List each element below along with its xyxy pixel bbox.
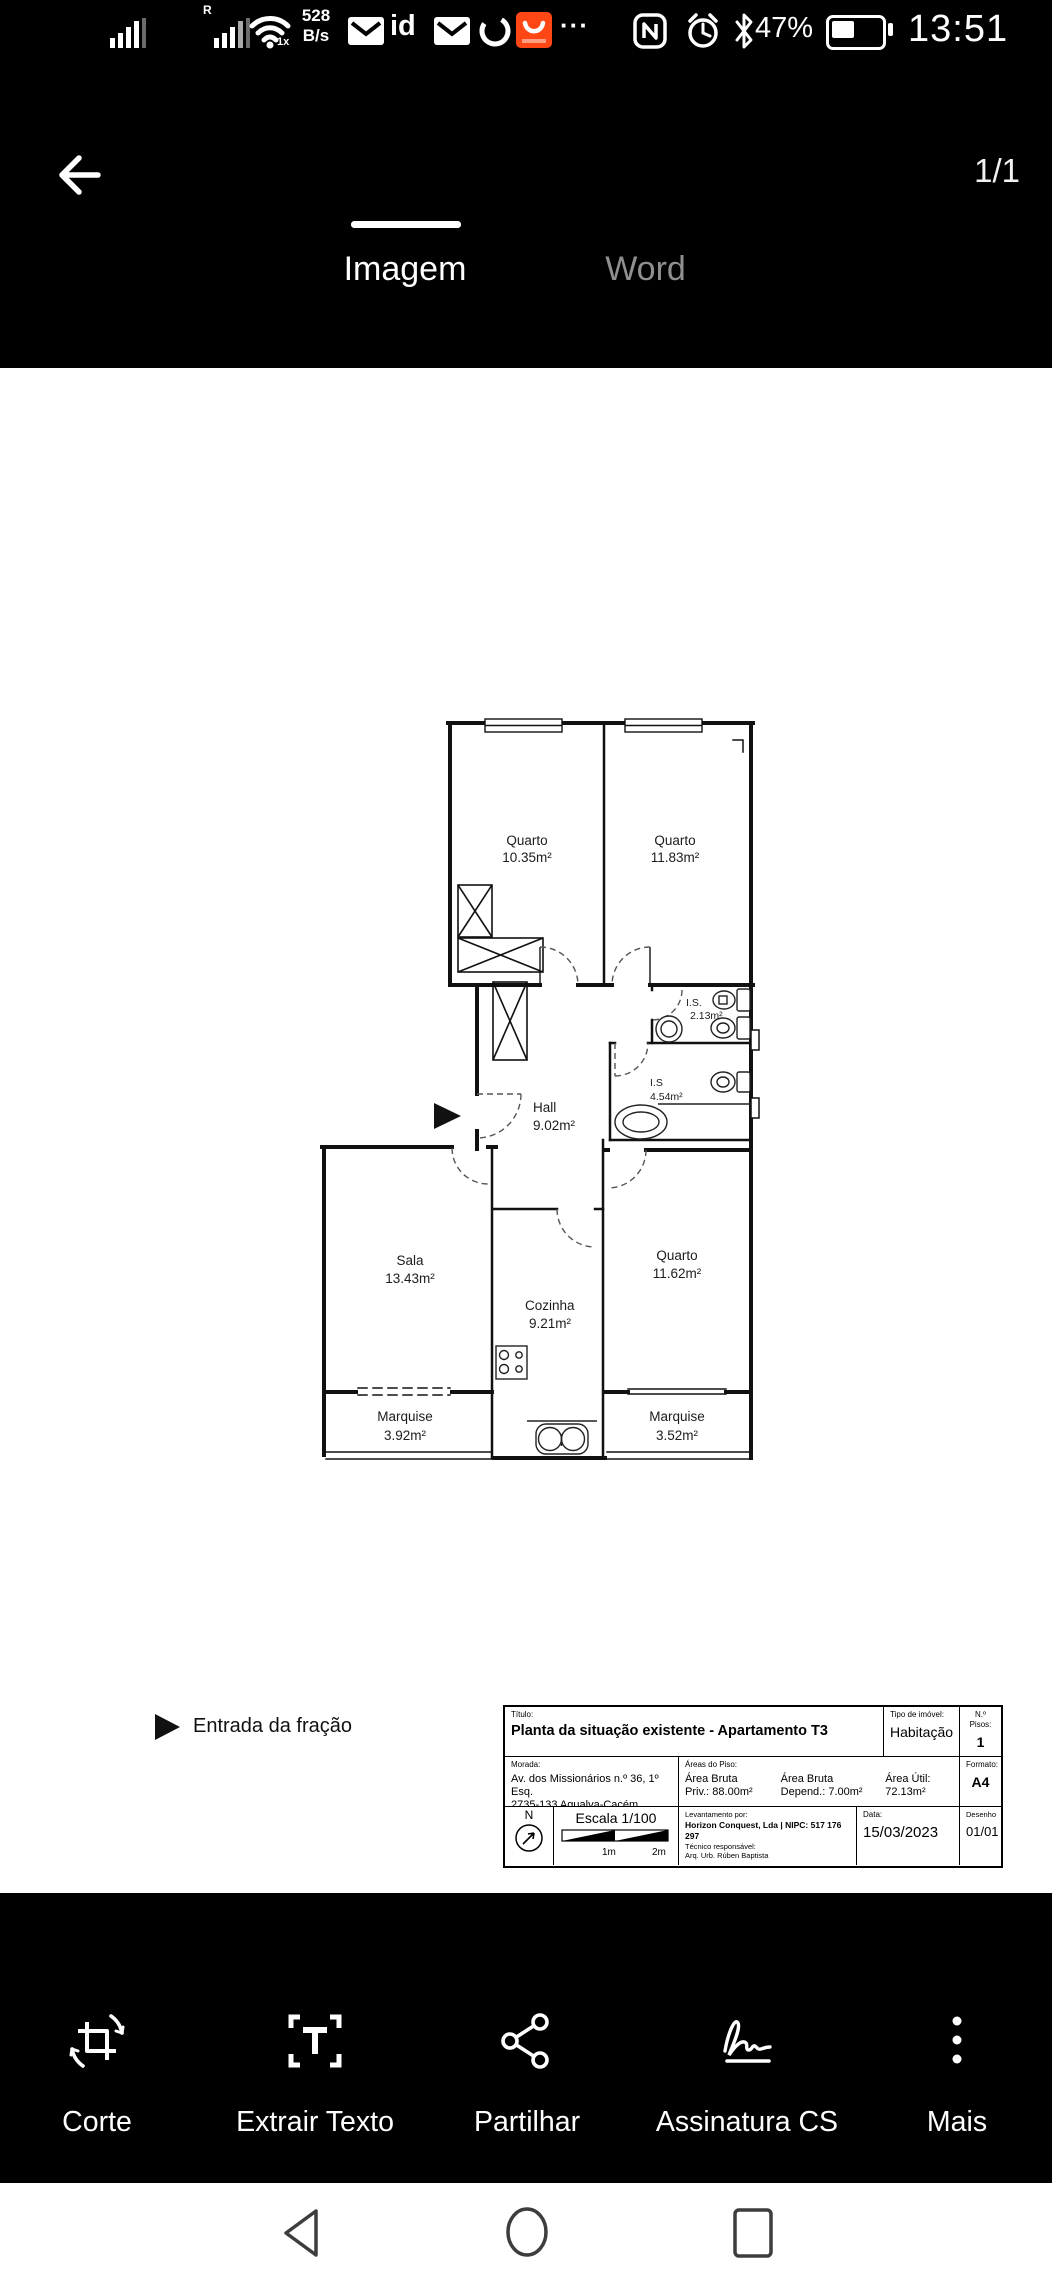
crop-label: Corte	[17, 2106, 177, 2139]
data-value: 15/03/2023	[863, 1824, 953, 1841]
data-cell: Data: 15/03/2023	[856, 1807, 959, 1865]
room-area: 11.62m²	[653, 1266, 702, 1281]
room-area: 3.92m²	[384, 1428, 427, 1443]
id-app-icon: id	[390, 10, 416, 43]
battery-nub	[888, 23, 893, 36]
levantamento-label: Levantamento por:	[685, 1810, 850, 1820]
share-label: Partilhar	[427, 2106, 627, 2139]
room-area: 13.43m²	[385, 1271, 435, 1286]
clock: 13:51	[908, 8, 1008, 51]
room-area: 11.83m²	[651, 850, 700, 865]
crop-button[interactable]: Corte	[17, 2009, 177, 2139]
active-tab-underline	[351, 221, 461, 228]
north-label: N	[506, 1808, 552, 1822]
desenho-label: Desenho	[966, 1810, 995, 1819]
formato-label: Formato:	[966, 1760, 995, 1770]
title-cell: Título: Planta da situação existente - A…	[505, 1707, 883, 1756]
room-label: I.S	[650, 1077, 663, 1089]
morada-label: Morada:	[511, 1760, 672, 1770]
mail-icon-2	[434, 17, 470, 45]
desenho-value: 01/01	[966, 1824, 995, 1839]
crop-rotate-icon	[65, 2009, 129, 2073]
tecnico-label: Técnico responsável:	[685, 1842, 850, 1852]
room-area: 9.21m²	[529, 1316, 572, 1331]
escala-label: Escala 1/100	[560, 1810, 672, 1826]
bottom-toolbar: Corte Extrair Texto Partilhar Assinatura…	[0, 1893, 1052, 2183]
room-label: Cozinha	[525, 1298, 575, 1313]
morada-line1: Av. dos Missionários n.º 36, 1º Esq.	[511, 1773, 672, 1799]
floor-plan-image: Quarto 10.35m² Quarto 11.83m² I.S. 2.13m…	[300, 700, 770, 1490]
plan-entry-arrow-icon	[434, 1103, 461, 1129]
pisos-cell: N.º Pisos: 1	[959, 1707, 1001, 1756]
tipo-value: Habitação	[890, 1724, 953, 1740]
aliexpress-icon	[516, 12, 552, 48]
network-speed-unit: B/s	[287, 26, 345, 46]
plan-room-labels: Quarto 10.35m² Quarto 11.83m² I.S. 2.13m…	[377, 833, 723, 1443]
android-navbar	[0, 2183, 1052, 2276]
battery-percent: 47%	[755, 12, 813, 45]
extract-text-icon	[283, 2009, 347, 2073]
desenho-cell: Desenho 01/01	[959, 1807, 1001, 1865]
tab-imagem[interactable]: Imagem	[300, 250, 510, 289]
status-bar: R 1x 528 B/s id ···	[0, 0, 1052, 62]
titulo-value: Planta da situação existente - Apartamen…	[511, 1723, 877, 1740]
more-notifications-icon: ···	[560, 10, 589, 41]
scale-tick-1m: 1m	[602, 1847, 616, 1858]
area-bruta-dep-l2: Depend.: 7.00m²	[781, 1786, 886, 1799]
nav-home-button[interactable]	[504, 2206, 550, 2258]
areas-cell: Áreas do Piso: Área Bruta Priv.: 88.00m²…	[678, 1757, 959, 1806]
tipo-cell: Tipo de imóvel: Habitação	[883, 1707, 959, 1756]
sync-ring-icon	[478, 14, 512, 48]
plan-windows	[485, 717, 702, 735]
extract-text-button[interactable]: Extrair Texto	[195, 2009, 435, 2139]
room-label: Marquise	[377, 1409, 433, 1424]
share-button[interactable]: Partilhar	[427, 2009, 627, 2139]
room-area: 10.35m²	[502, 850, 552, 865]
legend-entry-label: Entrada da fração	[193, 1715, 352, 1738]
tecnico-value: Arq. Urb. Rúben Baptista	[685, 1851, 850, 1861]
more-vertical-icon	[925, 2009, 989, 2073]
data-label: Data:	[863, 1810, 953, 1820]
document-page[interactable]: Quarto 10.35m² Quarto 11.83m² I.S. 2.13m…	[0, 368, 1052, 1893]
nav-recents-button[interactable]	[732, 2208, 774, 2258]
room-label: Quarto	[654, 833, 695, 848]
formato-value: A4	[966, 1774, 995, 1790]
room-area: 2.13m²	[690, 1010, 723, 1022]
formato-cell: Formato: A4	[959, 1757, 1001, 1806]
tipo-label: Tipo de imóvel:	[890, 1710, 953, 1720]
more-label: Mais	[877, 2106, 1037, 2139]
room-area: 9.02m²	[533, 1118, 576, 1133]
north-cell: N	[505, 1807, 553, 1865]
morada-cell: Morada: Av. dos Missionários n.º 36, 1º …	[505, 1757, 678, 1806]
mail-icon	[348, 17, 384, 45]
areas-label: Áreas do Piso:	[685, 1760, 953, 1770]
area-util-l1: Área Útil:	[885, 1773, 953, 1786]
signature-button[interactable]: Assinatura CS	[607, 2009, 887, 2139]
share-icon	[495, 2009, 559, 2073]
north-arrow-icon	[513, 1822, 545, 1854]
room-label: I.S.	[686, 997, 702, 1009]
area-bruta-priv-l1: Área Bruta	[685, 1773, 781, 1786]
area-util-l2: 72.13m²	[885, 1786, 953, 1799]
area-bruta-priv-l2: Priv.: 88.00m²	[685, 1786, 781, 1799]
scale-cell: Escala 1/100 1m 2m	[553, 1807, 678, 1865]
plan-doors	[452, 947, 682, 1247]
header-bar: Imagem Word 1/1	[0, 100, 1052, 240]
battery-icon	[826, 15, 886, 50]
network-speed-value: 528	[287, 6, 345, 26]
bluetooth-icon	[733, 11, 755, 51]
titulo-label: Título:	[511, 1710, 877, 1720]
room-label: Hall	[533, 1100, 556, 1115]
room-area: 4.54m²	[650, 1091, 683, 1103]
nfc-icon	[633, 13, 667, 49]
scale-bar	[561, 1828, 671, 1844]
morada-line2: 2735-133 Agualva-Cacém, Sintra	[511, 1799, 672, 1806]
plan-closets	[458, 885, 543, 1060]
tab-word[interactable]: Word	[558, 250, 733, 289]
pisos-label: N.º Pisos:	[966, 1710, 995, 1730]
room-label: Sala	[396, 1253, 424, 1268]
title-block: Título: Planta da situação existente - A…	[503, 1705, 1003, 1868]
alarm-clock-icon	[684, 12, 722, 50]
extract-text-label: Extrair Texto	[195, 2106, 435, 2139]
signal-strength-icon	[110, 16, 150, 48]
pisos-value: 1	[966, 1734, 995, 1750]
plan-fixtures	[496, 989, 751, 1454]
room-label: Quarto	[506, 833, 547, 848]
levantamento-cell: Levantamento por: Horizon Conquest, Lda …	[678, 1807, 856, 1865]
signature-cs-label: Assinatura CS	[607, 2106, 887, 2139]
scale-tick-2m: 2m	[652, 1847, 666, 1858]
room-label: Quarto	[656, 1248, 697, 1263]
more-button[interactable]: Mais	[877, 2009, 1037, 2139]
entry-arrow-icon	[155, 1714, 180, 1740]
nav-back-button[interactable]	[280, 2208, 322, 2258]
levantamento-value: Horizon Conquest, Lda | NIPC: 517 176 29…	[685, 1820, 850, 1842]
back-button[interactable]	[52, 148, 106, 202]
room-label: Marquise	[649, 1409, 705, 1424]
network-speed: 528 B/s	[287, 6, 345, 46]
roaming-badge: R	[203, 3, 212, 17]
page-indicator: 1/1	[920, 152, 1020, 190]
signature-icon	[715, 2009, 779, 2073]
room-area: 3.52m²	[656, 1428, 699, 1443]
area-bruta-dep-l1: Área Bruta	[781, 1773, 886, 1786]
